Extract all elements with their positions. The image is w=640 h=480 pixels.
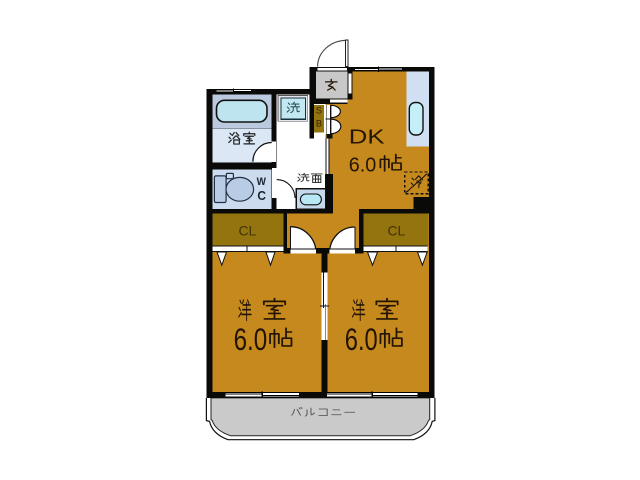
svg-text:6.0: 6.0	[234, 322, 268, 357]
svg-text:CL: CL	[239, 222, 257, 238]
svg-text:6.0: 6.0	[345, 322, 378, 357]
svg-text:B: B	[316, 118, 322, 129]
svg-text:DK: DK	[349, 127, 385, 149]
svg-text:W: W	[257, 176, 267, 188]
svg-text:CL: CL	[388, 222, 406, 238]
svg-text:S: S	[316, 105, 322, 116]
svg-text:6.0: 6.0	[349, 154, 377, 177]
svg-text:C: C	[257, 189, 266, 203]
